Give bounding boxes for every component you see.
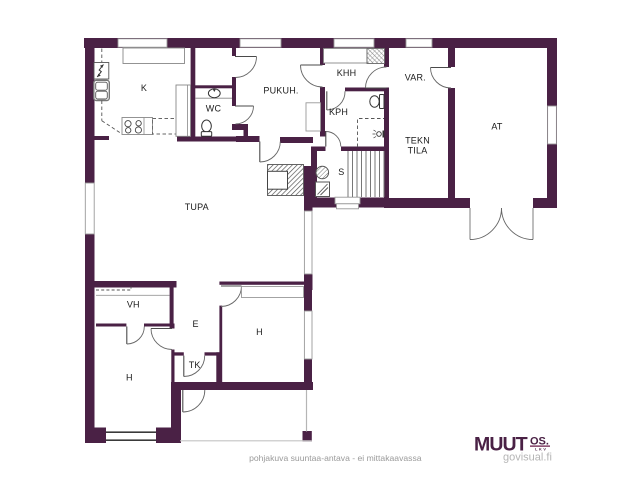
svg-text:KHH: KHH [337,68,357,78]
svg-text:VH: VH [127,300,140,310]
svg-text:S: S [338,167,344,177]
svg-text:KPH: KPH [329,107,348,117]
svg-text:H: H [126,373,133,383]
svg-text:K: K [141,83,147,93]
svg-text:TEKN: TEKN [405,136,430,146]
svg-text:H: H [256,327,263,337]
svg-text:WC: WC [206,104,222,114]
svg-text:VAR.: VAR. [405,73,426,83]
svg-text:govisual.fi: govisual.fi [503,451,552,463]
svg-text:TUPA: TUPA [185,202,209,212]
svg-text:PUKUH.: PUKUH. [263,86,298,96]
svg-text:E: E [192,319,198,329]
svg-text:pohjakuva suuntaa-antava - ei: pohjakuva suuntaa-antava - ei mittakaava… [249,453,422,463]
svg-text:TILA: TILA [408,146,428,156]
svg-text:AT: AT [491,122,503,132]
svg-text:TK: TK [189,360,201,370]
